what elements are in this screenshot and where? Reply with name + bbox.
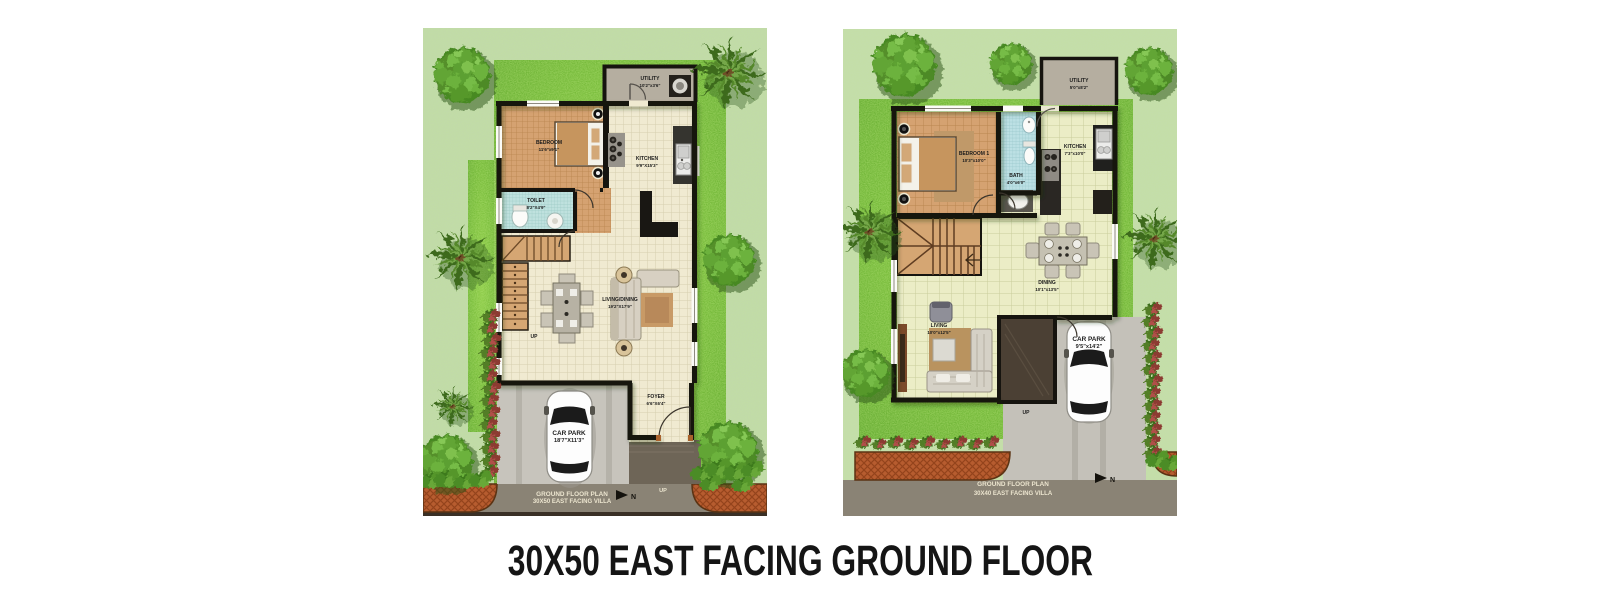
svg-text:KITCHEN: KITCHEN — [636, 156, 659, 162]
svg-text:30X40 EAST FACING VILLA: 30X40 EAST FACING VILLA — [974, 491, 1053, 497]
svg-text:10'2"x3'6": 10'2"x3'6" — [640, 83, 661, 88]
svg-text:10'1"x13'5": 10'1"x13'5" — [1035, 287, 1058, 292]
svg-text:7'3"x10'0": 7'3"x10'0" — [1065, 151, 1086, 156]
svg-text:UTILITY: UTILITY — [1070, 78, 1090, 84]
svg-text:UP: UP — [1023, 410, 1031, 416]
svg-text:5'0"x8'2": 5'0"x8'2" — [1070, 85, 1088, 90]
svg-text:N: N — [631, 494, 636, 501]
svg-text:LIVING: LIVING — [931, 323, 948, 329]
svg-text:GROUND FLOOR PLAN: GROUND FLOOR PLAN — [536, 491, 608, 498]
svg-text:UP: UP — [531, 334, 539, 340]
svg-text:11'6"x9'1": 11'6"x9'1" — [539, 147, 560, 152]
svg-text:DINING: DINING — [1038, 280, 1056, 286]
svg-text:CAR PARK: CAR PARK — [1072, 336, 1106, 343]
svg-text:30X50 EAST FACING VILLA: 30X50 EAST FACING VILLA — [533, 499, 612, 505]
svg-text:4'0"x6'0": 4'0"x6'0" — [1007, 180, 1025, 185]
svg-text:8'2"X4'9": 8'2"X4'9" — [527, 205, 546, 210]
svg-text:N: N — [1110, 477, 1115, 484]
svg-text:BEDROOM 1: BEDROOM 1 — [959, 151, 990, 157]
svg-text:LIVING/DINING: LIVING/DINING — [602, 297, 638, 303]
svg-text:10'3"x10'0": 10'3"x10'0" — [962, 158, 985, 163]
svg-text:9'9"X15'3": 9'9"X15'3" — [636, 163, 657, 168]
svg-text:18'7"X11'3": 18'7"X11'3" — [554, 438, 584, 444]
svg-text:6'6"X6'4": 6'6"X6'4" — [647, 401, 666, 406]
svg-text:BATH: BATH — [1009, 173, 1023, 179]
svg-text:UP: UP — [659, 488, 667, 494]
svg-text:10'0"x12'5": 10'0"x12'5" — [927, 330, 950, 335]
svg-text:KITCHEN: KITCHEN — [1064, 144, 1087, 150]
svg-text:BEDROOM: BEDROOM — [536, 140, 562, 146]
svg-text:CAR PARK: CAR PARK — [552, 430, 586, 437]
svg-text:19'2"X17'9": 19'2"X17'9" — [608, 304, 632, 309]
svg-text:FOYER: FOYER — [647, 394, 665, 400]
svg-text:GROUND FLOOR PLAN: GROUND FLOOR PLAN — [977, 481, 1049, 488]
svg-text:UTILITY: UTILITY — [641, 76, 661, 82]
svg-text:TOILET: TOILET — [527, 198, 545, 204]
svg-text:9'5"x14'2": 9'5"x14'2" — [1076, 344, 1103, 350]
